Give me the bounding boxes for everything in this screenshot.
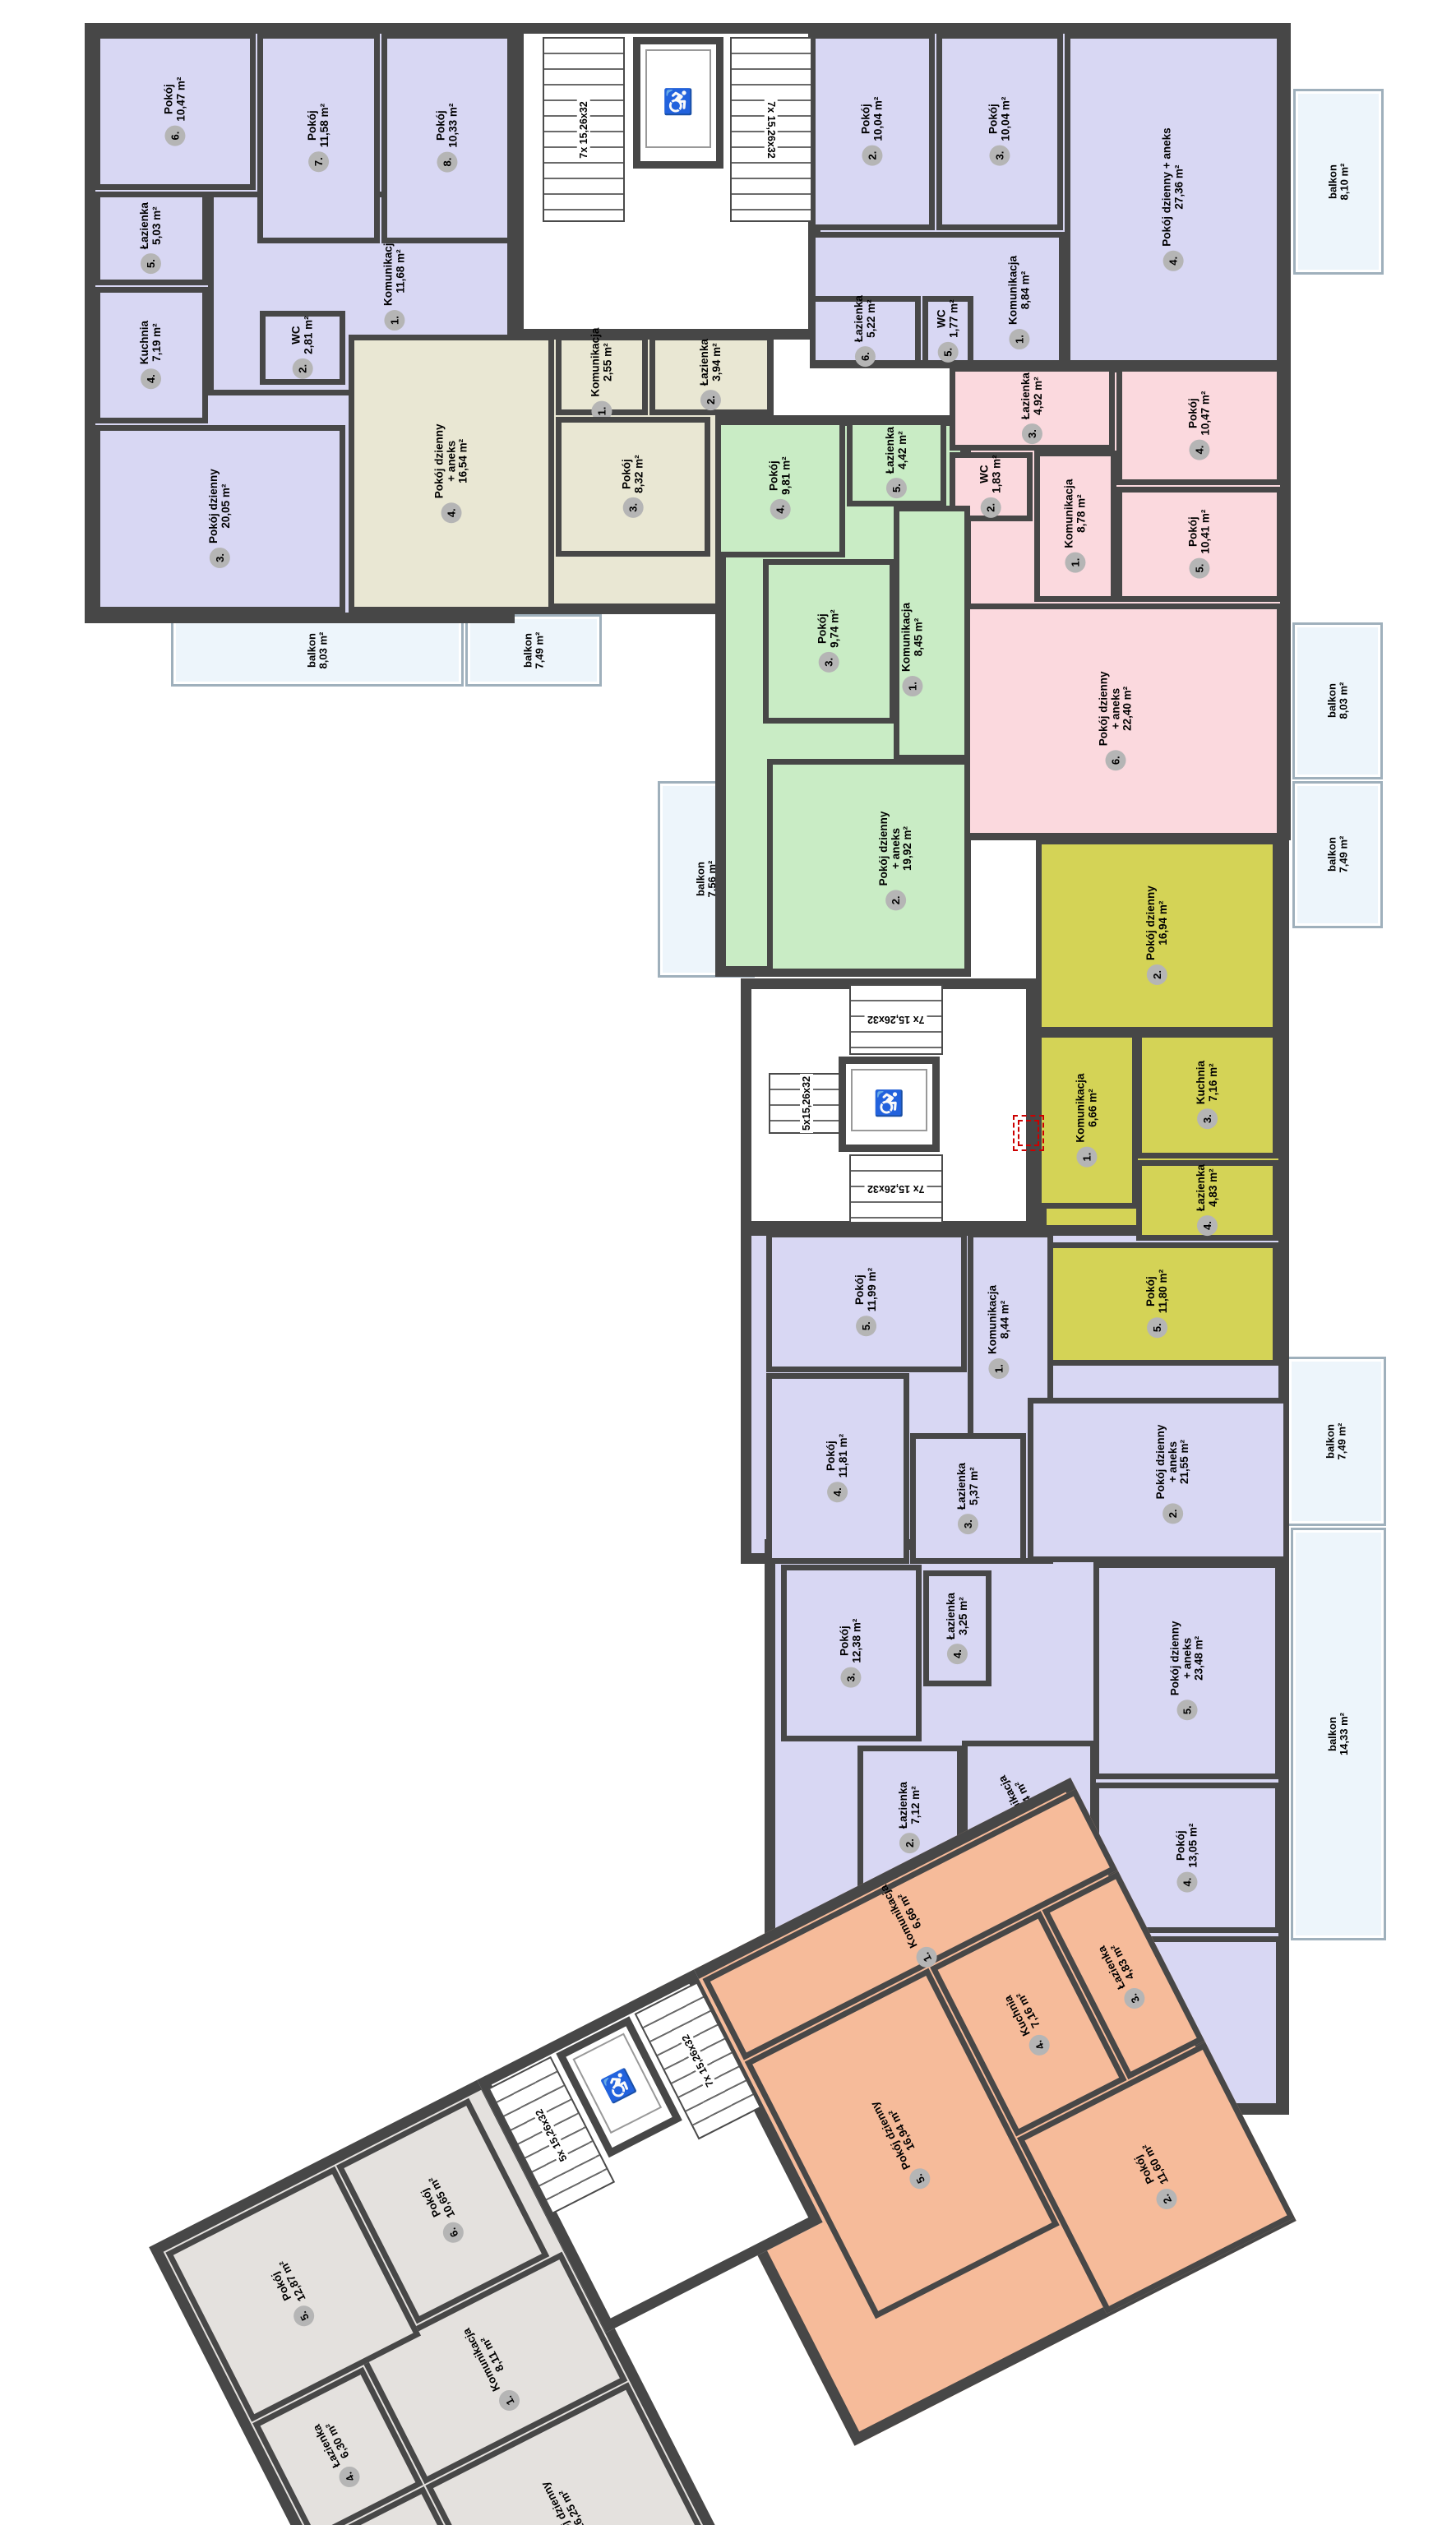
stair-flight: 7x 15,26x32 [730, 37, 812, 222]
room-number-badge: 6. [164, 126, 185, 146]
room-apt4-pok-j: 5.Pokój10,41 m² [1116, 487, 1283, 602]
room-label: 4.Łazienka4,83 m² [1195, 1164, 1219, 1236]
room-label: 3.Pokój9,74 m² [817, 610, 841, 673]
room-apt6-pok-j-dzienny: 2.Pokój dzienny16,94 m² [1036, 839, 1278, 1033]
room-apt3-pok-j: 3.Pokój10,04 m² [936, 33, 1063, 230]
room-apt5--azienka: 5.Łazienka4,42 m² [847, 419, 946, 506]
room-number-badge: 2. [981, 497, 1001, 518]
room-apt1-kuchnia: 4.Kuchnia7,19 m² [95, 287, 208, 423]
room-apt1-pok-j: 7.Pokój11,58 m² [257, 33, 380, 243]
room-apt6-komunikacja: 1.Komunikacja6,66 m² [1036, 1032, 1138, 1209]
balcony-label: balkon8,03 m² [1326, 682, 1349, 719]
room-number-badge: 3. [989, 146, 1010, 166]
balcony: balkon14,33 m² [1291, 1528, 1386, 1940]
room-number-badge: 4. [827, 1482, 848, 1503]
room-label: 3.Łazienka5,37 m² [956, 1463, 980, 1534]
balcony-label: balkon7,49 m² [1324, 1423, 1347, 1460]
room-label: 5.Pokój10,41 m² [1187, 510, 1211, 579]
room-apt1-wc: 2.WC2,81 m² [260, 311, 345, 385]
room-label: 1.Komunikacja8,11 m² [461, 2321, 525, 2416]
room-apt2-pok-j-dzienny: 4.Pokój dzienny+ aneks16,54 m² [349, 335, 554, 613]
room-label: 2.WC2,81 m² [290, 317, 314, 380]
room-number-badge: 6. [440, 2219, 468, 2247]
room-label: 7.Pokój11,58 m² [307, 104, 330, 172]
wheelchair-icon: ♿ [874, 1092, 904, 1117]
room-label: 5.Pokój11,80 m² [1145, 1269, 1169, 1338]
balcony-label: balkon7,49 m² [522, 632, 545, 669]
balcony: balkon8,03 m² [1292, 622, 1383, 779]
room-apt2-komunikacja: 1.Komunikacja2,55 m² [556, 335, 648, 415]
room-number-badge: 3. [1121, 1984, 1149, 2012]
room-number-badge: 5. [886, 479, 907, 499]
room-number-badge: 2. [1147, 964, 1167, 985]
room-number-badge: 3. [623, 497, 644, 518]
room-label: 3.Łazienka4,83 m² [1097, 1938, 1150, 2013]
room-number-badge: 6. [855, 346, 876, 367]
room-label: 3.Kuchnia7,16 m² [1195, 1061, 1219, 1129]
room-apt5-pok-j-dzienny [767, 759, 970, 974]
balcony: balkon8,03 m² [171, 614, 464, 687]
room-label: 5.Pokój11,99 m² [854, 1268, 878, 1336]
room-label: 2.Pokój10,04 m² [860, 97, 884, 166]
room-apt1-pok-j: 8.Pokój10,33 m² [381, 33, 513, 243]
room-label: 1.Komunikacja8,78 m² [1063, 479, 1087, 573]
room-apt6-pok-j: 5.Pokój11,80 m² [1036, 1242, 1278, 1366]
room-label: 2.Łazienka7,12 m² [898, 1782, 922, 1853]
room-label: 2.WC1,83 m² [979, 456, 1003, 519]
balcony-label: balkon7,56 m² [695, 861, 718, 898]
room-label: 6.Pokój dzienny+ aneks22,40 m² [1098, 672, 1135, 771]
room-label: 4.Łazienka3,25 m² [945, 1593, 969, 1664]
room-number-badge: 3. [1022, 423, 1042, 444]
stair-flight-label: 7x 15,26x32 [765, 99, 778, 161]
room-apt5-pok-j: 3.Pokój9,74 m² [763, 559, 895, 724]
room-label: 4.Pokój11,81 m² [825, 1434, 849, 1502]
room-apt2--azienka: 2.Łazienka3,94 m² [649, 335, 773, 415]
room-label: 1.Komunikacja2,55 m² [589, 328, 613, 422]
room-label: 6.Pokój10,65 m² [417, 2175, 469, 2247]
stair-flight-label: 7x 15,26x32 [577, 99, 590, 161]
red-dashed-marker [1013, 1115, 1044, 1151]
room-label: 3.Pokój10,04 m² [987, 97, 1011, 166]
room-apt7--azienka: 3.Łazienka5,37 m² [910, 1433, 1026, 1564]
room-number-badge: 5. [856, 1316, 876, 1336]
room-label: 3.Łazienka4,92 m² [1020, 372, 1044, 444]
room-number-badge: 5. [1189, 558, 1209, 579]
room-number-badge: 4. [1189, 440, 1209, 460]
room-number-badge: 2. [293, 358, 313, 379]
room-apt1-pok-j: 6.Pokój10,47 m² [95, 33, 256, 190]
room-label: 8.Pokój10,33 m² [435, 104, 459, 173]
room-apt6-kuchnia: 3.Kuchnia7,16 m² [1136, 1032, 1278, 1158]
room-label: 6.Łazienka5,22 m² [853, 295, 877, 367]
balcony: balkon7,49 m² [465, 614, 602, 687]
room-apt3-pok-j: 2.Pokój10,04 m² [810, 33, 935, 230]
wheelchair-icon: ♿ [663, 90, 693, 115]
room-number-badge: 3. [841, 1667, 862, 1688]
room-label: 1.Komunikacja6,66 m² [878, 1877, 942, 1972]
room-apt4-komunikacja: 1.Komunikacja8,78 m² [1034, 451, 1116, 602]
room-number-badge: 4. [1163, 251, 1184, 271]
room-label: 2.Pokój11,60 m² [1130, 2142, 1182, 2213]
room-label: 1.Komunikacja6,66 m² [1075, 1073, 1098, 1167]
room-number-badge: 5. [290, 2302, 318, 2330]
room-apt8-pok-j: 3.Pokój12,38 m² [781, 1565, 922, 1741]
room-label: 4.Pokój dzienny + aneks27,36 m² [1162, 127, 1186, 271]
room-apt7-pok-j: 5.Pokój11,99 m² [766, 1232, 967, 1372]
room-number-badge: 5. [141, 254, 162, 275]
room-label: 5.Łazienka4,42 m² [885, 427, 908, 498]
room-number-badge: 8. [437, 152, 457, 173]
room-apt8-pok-j-dzienny: 5.Pokój dzienny+ aneks23,48 m² [1093, 1562, 1281, 1779]
stair-flight: 7x 15,26x32 [543, 37, 625, 222]
room-apt7-pok-j: 4.Pokój11,81 m² [766, 1373, 909, 1564]
balcony-label: balkon7,49 m² [1326, 836, 1349, 873]
room-apt3-pok-j-dzienny-aneks: 4.Pokój dzienny + aneks27,36 m² [1065, 33, 1283, 366]
room-label: 2.Pokój dzienny16,94 m² [1145, 886, 1169, 986]
room-label: 4.Pokój9,81 m² [768, 457, 792, 520]
stair-flight-label: 7x 15,26x32 [865, 1013, 927, 1026]
room-apt2-pok-j: 3.Pokój8,32 m² [556, 417, 710, 557]
room-apt5-pok-j: 4.Pokój9,81 m² [715, 419, 845, 557]
room-number-badge: 4. [770, 499, 791, 520]
room-label: 4.Kuchnia7,16 m² [1002, 1988, 1055, 2060]
room-number-badge: 3. [1197, 1109, 1218, 1130]
floor-plan: balkon8,03 m²balkon7,49 m²balkon8,10 m²b… [0, 0, 1456, 2525]
room-label: 5.Pokój12,87 m² [267, 2258, 320, 2330]
room-number-badge: 2. [900, 1833, 921, 1853]
room-number-badge: 4. [141, 369, 161, 390]
balcony: balkon7,49 m² [1292, 781, 1383, 928]
room-number-badge: 4. [947, 1644, 968, 1664]
room-number-badge: 7. [308, 152, 329, 173]
room-number-badge: 2. [701, 391, 722, 411]
room-number-badge: 3. [819, 652, 839, 673]
room-apt3-wc: 5.WC1,77 m² [922, 296, 973, 366]
room-label: 5.Pokój dzienny+ aneks23,48 m² [1169, 1621, 1205, 1721]
room-number-badge: 6. [1106, 750, 1126, 770]
balcony-label: balkon8,10 m² [1327, 164, 1350, 201]
stair-flight: 7x 15,26x32 [849, 984, 943, 1055]
room-number-badge: 5. [906, 2165, 934, 2193]
stair-flight: 5x15,26x32 [769, 1073, 845, 1134]
stair-flight: 7x 15,26x32 [849, 1154, 943, 1223]
room-apt5-komunikacja [894, 506, 970, 761]
balcony-label: balkon14,33 m² [1327, 1713, 1350, 1755]
room-number-badge: 4. [1176, 1872, 1197, 1893]
room-apt3--azienka: 6.Łazienka5,22 m² [810, 296, 921, 366]
room-number-badge: 1. [496, 2387, 524, 2415]
room-label: 4.Pokój13,05 m² [1175, 1823, 1199, 1892]
room-apt6--azienka: 4.Łazienka4,83 m² [1136, 1160, 1278, 1241]
room-label: 4.Pokój dzienny+ aneks16,54 m² [433, 424, 469, 524]
room-apt8--azienka: 4.Łazienka3,25 m² [923, 1570, 991, 1686]
balcony: balkon7,49 m² [1287, 1357, 1386, 1526]
room-number-badge: 3. [958, 1514, 978, 1534]
room-label: 2.Pokój dzienny16,25 m² [539, 2474, 606, 2525]
room-number-badge: 5. [938, 342, 959, 363]
stair-flight-label: 7x 15,26x32 [865, 1182, 927, 1195]
room-label: 3.Pokój12,38 m² [839, 1618, 863, 1687]
stair-flight-label: 5x 15,26x32 [531, 2105, 571, 2167]
room-label: 3.Pokój dzienny20,05 m² [208, 469, 232, 569]
balcony: balkon8,10 m² [1293, 89, 1384, 275]
room-number-badge: 4. [441, 502, 461, 523]
room-label: 4.Łazienka6,30 m² [311, 2416, 364, 2491]
room-number-badge: 5. [1176, 1700, 1197, 1720]
room-label: 2.Łazienka3,94 m² [699, 339, 723, 410]
room-apt7-pok-j-dzienny [1028, 1398, 1289, 1562]
room-number-badge: 4. [1025, 2031, 1053, 2059]
room-label: 5.WC1,77 m² [936, 299, 959, 363]
room-apt4--azienka: 3.Łazienka4,92 m² [950, 366, 1115, 451]
room-number-badge: 1. [1077, 1147, 1098, 1168]
balcony-label: balkon8,03 m² [306, 632, 329, 669]
room-number-badge: 1. [1065, 553, 1086, 573]
room-apt1--azienka: 5.Łazienka5,03 m² [95, 192, 208, 285]
room-label: 5.Łazienka5,03 m² [139, 202, 163, 274]
room-label: 4.Pokój10,47 m² [1187, 391, 1211, 460]
elevator: ♿ [839, 1057, 940, 1152]
stair-flight-label: 5x15,26x32 [800, 1074, 813, 1133]
room-apt1-pok-j-dzienny: 3.Pokój dzienny20,05 m² [95, 425, 345, 613]
room-number-badge: 5. [1147, 1318, 1167, 1339]
room-number-badge: 2. [862, 146, 882, 166]
room-label: 3.Pokój8,32 m² [621, 456, 645, 519]
room-label: 6.Pokój10,47 m² [163, 76, 187, 146]
room-number-badge: 4. [1197, 1216, 1218, 1237]
room-number-badge: 3. [210, 548, 230, 568]
room-label: 4.Kuchnia7,19 m² [139, 321, 163, 389]
room-apt4-pok-j: 4.Pokój10,47 m² [1116, 366, 1283, 485]
room-number-badge: 2. [1153, 2185, 1181, 2213]
elevator: ♿ [633, 37, 723, 169]
room-number-badge: 4. [335, 2463, 363, 2491]
room-apt4-pok-j-dzienny: 6.Pokój dzienny+ aneks22,40 m² [950, 604, 1283, 839]
stair-flight-label: 7x 15,26x32 [678, 2030, 719, 2092]
room-label: 5.Pokój dzienny16,94 m² [869, 2094, 936, 2194]
